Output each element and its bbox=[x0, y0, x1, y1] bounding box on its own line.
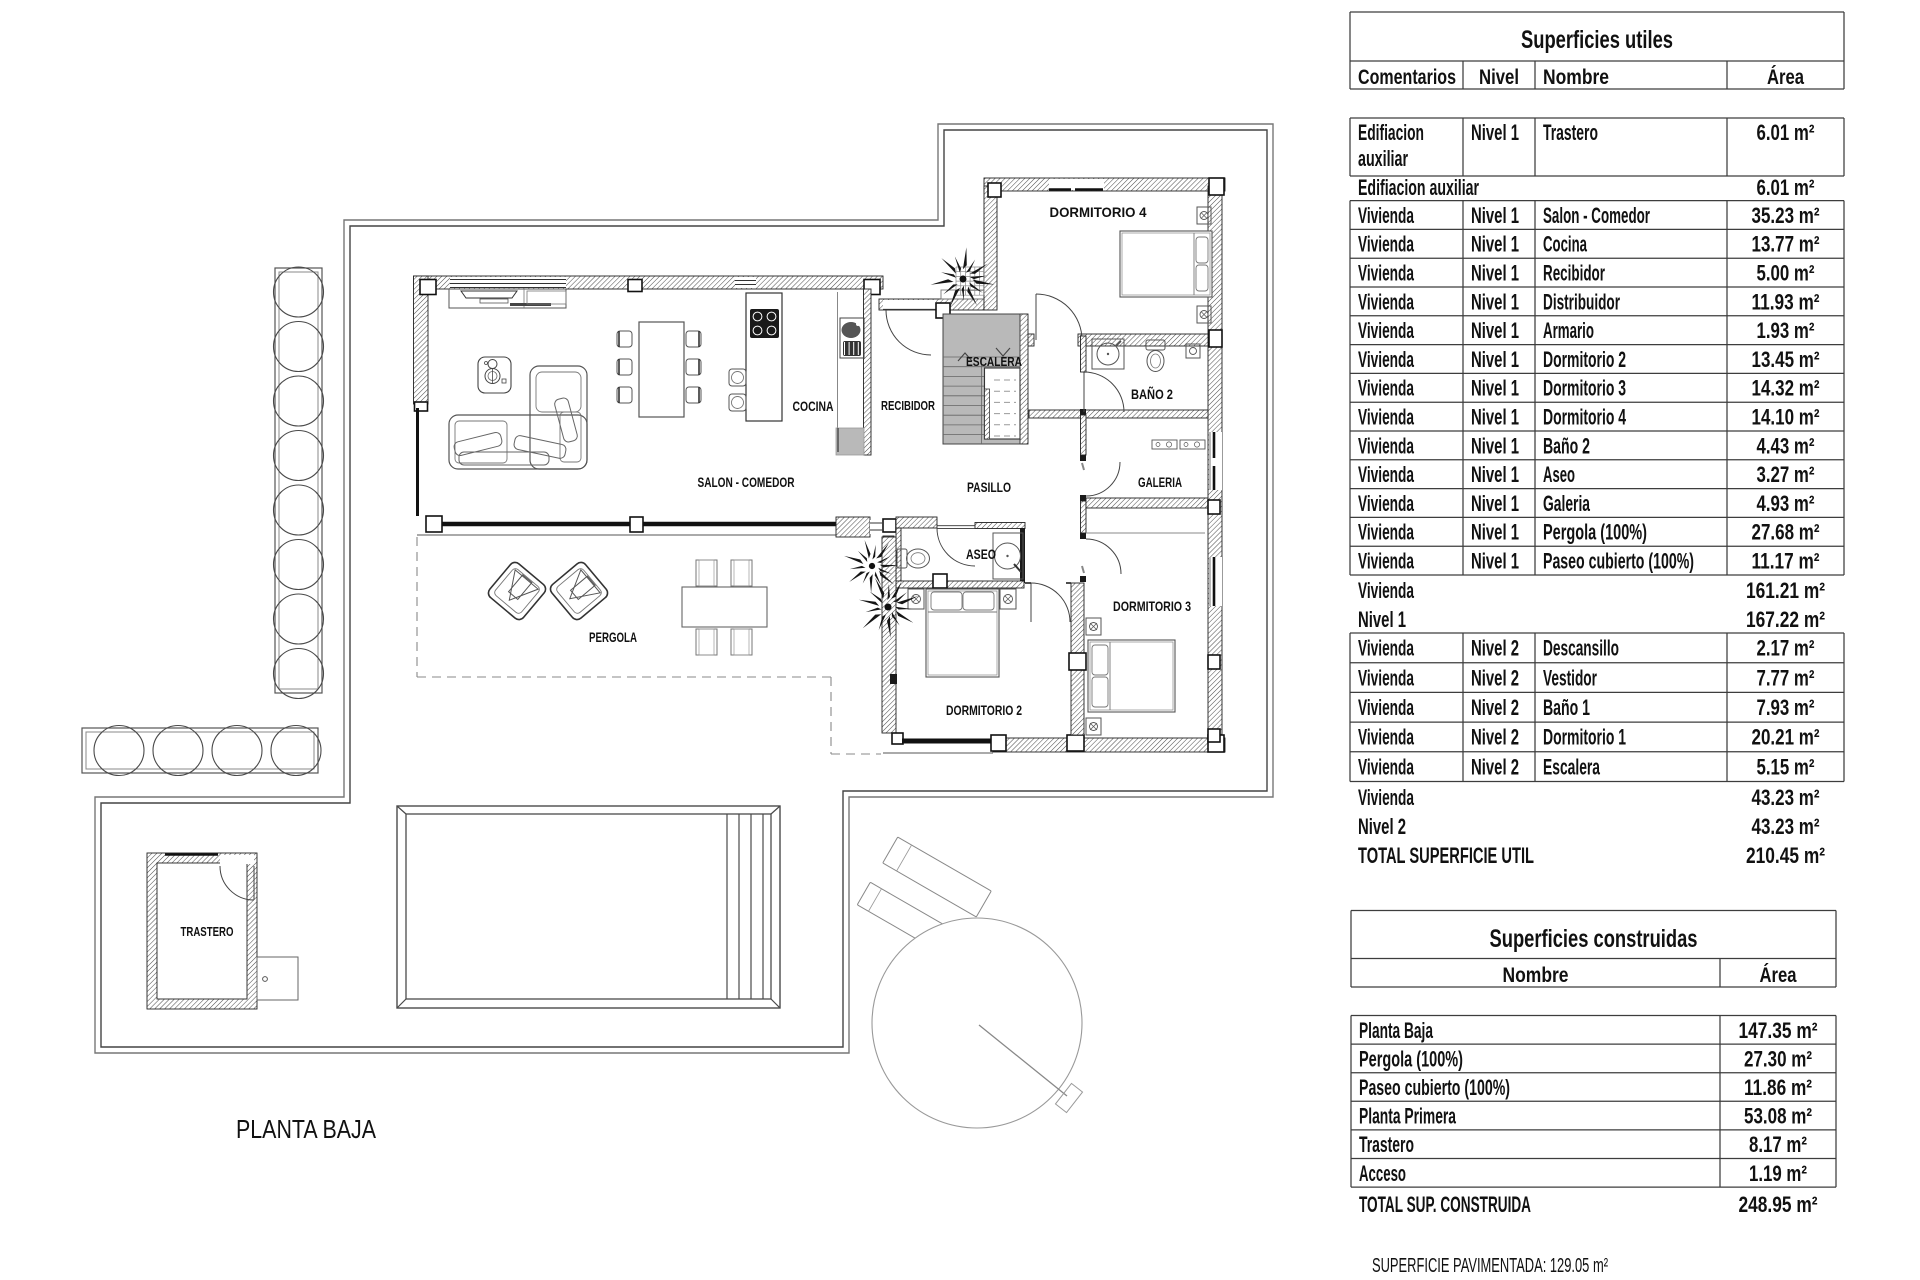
svg-text:Nivel 2: Nivel 2 bbox=[1471, 725, 1519, 750]
svg-text:11.86 m²: 11.86 m² bbox=[1744, 1075, 1812, 1100]
svg-text:PLANTA BAJA: PLANTA BAJA bbox=[236, 1114, 377, 1144]
svg-text:43.23 m²: 43.23 m² bbox=[1752, 785, 1820, 810]
svg-text:Salon - Comedor: Salon - Comedor bbox=[1543, 203, 1650, 228]
svg-text:Vivienda: Vivienda bbox=[1358, 785, 1414, 810]
svg-text:Acceso: Acceso bbox=[1359, 1161, 1406, 1186]
svg-text:Comentarios: Comentarios bbox=[1358, 65, 1456, 89]
svg-text:Vivienda: Vivienda bbox=[1358, 491, 1414, 516]
svg-text:Nivel: Nivel bbox=[1479, 65, 1519, 89]
svg-text:Nivel 1: Nivel 1 bbox=[1471, 462, 1519, 487]
svg-text:Vivienda: Vivienda bbox=[1358, 203, 1414, 228]
svg-text:Nivel 1: Nivel 1 bbox=[1471, 120, 1519, 145]
svg-text:Cocina: Cocina bbox=[1543, 232, 1587, 257]
svg-text:Nivel 1: Nivel 1 bbox=[1471, 405, 1519, 430]
svg-text:Distribuidor: Distribuidor bbox=[1543, 289, 1620, 314]
svg-text:DORMITORIO 3: DORMITORIO 3 bbox=[1113, 598, 1191, 614]
svg-text:Vivienda: Vivienda bbox=[1358, 376, 1414, 401]
svg-text:248.95 m²: 248.95 m² bbox=[1739, 1192, 1818, 1217]
svg-text:Superficies construidas: Superficies construidas bbox=[1490, 925, 1698, 953]
svg-text:Vivienda: Vivienda bbox=[1358, 549, 1414, 574]
svg-text:Dormitorio 4: Dormitorio 4 bbox=[1543, 405, 1626, 430]
svg-text:Escalera: Escalera bbox=[1543, 754, 1600, 779]
svg-text:Trastero: Trastero bbox=[1543, 120, 1598, 145]
svg-text:TRASTERO: TRASTERO bbox=[181, 924, 234, 939]
svg-text:Área: Área bbox=[1760, 962, 1798, 987]
svg-text:7.77 m²: 7.77 m² bbox=[1757, 665, 1815, 690]
svg-text:PASILLO: PASILLO bbox=[967, 479, 1011, 495]
svg-text:Nivel 2: Nivel 2 bbox=[1358, 814, 1406, 839]
svg-text:Vivienda: Vivienda bbox=[1358, 261, 1414, 286]
svg-text:Nombre: Nombre bbox=[1543, 65, 1609, 89]
svg-text:Trastero: Trastero bbox=[1359, 1132, 1414, 1157]
svg-text:Vivienda: Vivienda bbox=[1358, 347, 1414, 372]
svg-text:Vivienda: Vivienda bbox=[1358, 695, 1414, 720]
svg-text:Edifiacion: Edifiacion bbox=[1358, 120, 1424, 145]
svg-text:SUPERFICIE PAVIMENTADA: 129.05: SUPERFICIE PAVIMENTADA: 129.05 m² bbox=[1372, 1255, 1608, 1277]
svg-text:Nivel 2: Nivel 2 bbox=[1471, 636, 1519, 661]
svg-text:DORMITORIO 2: DORMITORIO 2 bbox=[946, 702, 1022, 718]
svg-text:Vivienda: Vivienda bbox=[1358, 289, 1414, 314]
svg-text:Vivienda: Vivienda bbox=[1358, 636, 1414, 661]
svg-text:Vivienda: Vivienda bbox=[1358, 232, 1414, 257]
svg-text:Planta Baja: Planta Baja bbox=[1359, 1018, 1433, 1043]
svg-text:8.17 m²: 8.17 m² bbox=[1749, 1132, 1807, 1157]
svg-text:Nivel 1: Nivel 1 bbox=[1471, 376, 1519, 401]
svg-text:Armario: Armario bbox=[1543, 318, 1594, 343]
svg-text:Nivel 1: Nivel 1 bbox=[1471, 232, 1519, 257]
svg-text:Nivel 1: Nivel 1 bbox=[1471, 318, 1519, 343]
svg-text:5.00 m²: 5.00 m² bbox=[1757, 261, 1815, 286]
svg-text:Superficies utiles: Superficies utiles bbox=[1521, 26, 1673, 54]
svg-text:Paseo cubierto (100%): Paseo cubierto (100%) bbox=[1359, 1075, 1510, 1100]
svg-text:14.10 m²: 14.10 m² bbox=[1752, 405, 1820, 430]
svg-text:Nivel 1: Nivel 1 bbox=[1471, 433, 1519, 458]
svg-text:35.23 m²: 35.23 m² bbox=[1752, 203, 1820, 228]
svg-text:GALERIA: GALERIA bbox=[1138, 475, 1182, 490]
svg-text:161.21 m²: 161.21 m² bbox=[1746, 578, 1825, 603]
svg-text:167.22 m²: 167.22 m² bbox=[1746, 607, 1825, 632]
svg-text:COCINA: COCINA bbox=[793, 398, 834, 414]
svg-text:Pergola (100%): Pergola (100%) bbox=[1359, 1046, 1463, 1071]
svg-text:Vivienda: Vivienda bbox=[1358, 318, 1414, 343]
svg-text:DORMITORIO 4: DORMITORIO 4 bbox=[1050, 204, 1147, 220]
svg-text:Nombre: Nombre bbox=[1503, 963, 1569, 987]
svg-text:Vivienda: Vivienda bbox=[1358, 433, 1414, 458]
svg-text:Recibidor: Recibidor bbox=[1543, 261, 1605, 286]
svg-text:Nivel 1: Nivel 1 bbox=[1471, 289, 1519, 314]
svg-text:147.35 m²: 147.35 m² bbox=[1739, 1018, 1818, 1043]
svg-text:Baño 1: Baño 1 bbox=[1543, 695, 1590, 720]
svg-text:7.93 m²: 7.93 m² bbox=[1757, 695, 1815, 720]
svg-text:RECIBIDOR: RECIBIDOR bbox=[881, 398, 935, 413]
svg-text:1.19 m²: 1.19 m² bbox=[1749, 1161, 1807, 1186]
svg-text:27.30 m²: 27.30 m² bbox=[1744, 1046, 1812, 1071]
svg-text:6.01 m²: 6.01 m² bbox=[1757, 175, 1815, 200]
svg-text:27.68 m²: 27.68 m² bbox=[1752, 520, 1820, 545]
svg-text:Pergola (100%): Pergola (100%) bbox=[1543, 520, 1647, 545]
svg-text:Vestidor: Vestidor bbox=[1543, 665, 1597, 690]
svg-text:TOTAL SUPERFICIE UTIL: TOTAL SUPERFICIE UTIL bbox=[1358, 843, 1534, 868]
svg-text:auxiliar: auxiliar bbox=[1358, 146, 1408, 171]
svg-text:Galeria: Galeria bbox=[1543, 491, 1590, 516]
svg-text:ASEO: ASEO bbox=[966, 546, 996, 562]
svg-text:Vivienda: Vivienda bbox=[1358, 725, 1414, 750]
svg-text:PERGOLA: PERGOLA bbox=[589, 629, 637, 645]
svg-text:5.15 m²: 5.15 m² bbox=[1757, 754, 1815, 779]
svg-text:Nivel 1: Nivel 1 bbox=[1471, 203, 1519, 228]
svg-text:Nivel 1: Nivel 1 bbox=[1471, 520, 1519, 545]
svg-text:Nivel 1: Nivel 1 bbox=[1358, 607, 1406, 632]
svg-text:Descansillo: Descansillo bbox=[1543, 636, 1619, 661]
svg-text:Vivienda: Vivienda bbox=[1358, 578, 1414, 603]
svg-text:Dormitorio 2: Dormitorio 2 bbox=[1543, 347, 1626, 372]
svg-text:14.32 m²: 14.32 m² bbox=[1752, 376, 1820, 401]
svg-text:Nivel 1: Nivel 1 bbox=[1471, 491, 1519, 516]
svg-text:2.17 m²: 2.17 m² bbox=[1757, 636, 1815, 661]
svg-text:TOTAL SUP. CONSTRUIDA: TOTAL SUP. CONSTRUIDA bbox=[1359, 1192, 1531, 1217]
svg-text:Nivel 2: Nivel 2 bbox=[1471, 695, 1519, 720]
svg-text:Dormitorio 3: Dormitorio 3 bbox=[1543, 376, 1626, 401]
svg-text:Vivienda: Vivienda bbox=[1358, 665, 1414, 690]
svg-text:13.45 m²: 13.45 m² bbox=[1752, 347, 1820, 372]
svg-text:Paseo cubierto (100%): Paseo cubierto (100%) bbox=[1543, 549, 1694, 574]
svg-text:Nivel 1: Nivel 1 bbox=[1471, 549, 1519, 574]
svg-text:13.77 m²: 13.77 m² bbox=[1752, 232, 1820, 257]
svg-text:Vivienda: Vivienda bbox=[1358, 520, 1414, 545]
svg-text:210.45 m²: 210.45 m² bbox=[1746, 843, 1825, 868]
svg-text:BAÑO 2: BAÑO 2 bbox=[1131, 385, 1173, 402]
svg-text:Aseo: Aseo bbox=[1543, 462, 1575, 487]
svg-text:Nivel 1: Nivel 1 bbox=[1471, 347, 1519, 372]
svg-text:4.43 m²: 4.43 m² bbox=[1757, 433, 1815, 458]
svg-text:Área: Área bbox=[1767, 64, 1805, 89]
svg-text:6.01 m²: 6.01 m² bbox=[1757, 120, 1815, 145]
svg-text:ESCALERA: ESCALERA bbox=[966, 354, 1022, 369]
svg-text:Dormitorio 1: Dormitorio 1 bbox=[1543, 725, 1626, 750]
svg-text:SALON - COMEDOR: SALON - COMEDOR bbox=[698, 474, 795, 490]
svg-text:43.23 m²: 43.23 m² bbox=[1752, 814, 1820, 839]
svg-text:Nivel 1: Nivel 1 bbox=[1471, 261, 1519, 286]
svg-text:Vivienda: Vivienda bbox=[1358, 462, 1414, 487]
svg-text:Baño 2: Baño 2 bbox=[1543, 433, 1590, 458]
svg-text:Vivienda: Vivienda bbox=[1358, 405, 1414, 430]
svg-text:20.21 m²: 20.21 m² bbox=[1752, 725, 1820, 750]
svg-text:4.93 m²: 4.93 m² bbox=[1757, 491, 1815, 516]
svg-text:Nivel 2: Nivel 2 bbox=[1471, 665, 1519, 690]
svg-text:Edifiacion auxiliar: Edifiacion auxiliar bbox=[1358, 175, 1479, 200]
svg-text:Planta Primera: Planta Primera bbox=[1359, 1104, 1456, 1129]
svg-text:Vivienda: Vivienda bbox=[1358, 754, 1414, 779]
svg-text:53.08 m²: 53.08 m² bbox=[1744, 1104, 1812, 1129]
svg-text:1.93 m²: 1.93 m² bbox=[1757, 318, 1815, 343]
svg-text:Nivel 2: Nivel 2 bbox=[1471, 754, 1519, 779]
svg-text:11.17 m²: 11.17 m² bbox=[1752, 549, 1820, 574]
svg-text:3.27 m²: 3.27 m² bbox=[1757, 462, 1815, 487]
svg-text:11.93 m²: 11.93 m² bbox=[1752, 289, 1820, 314]
